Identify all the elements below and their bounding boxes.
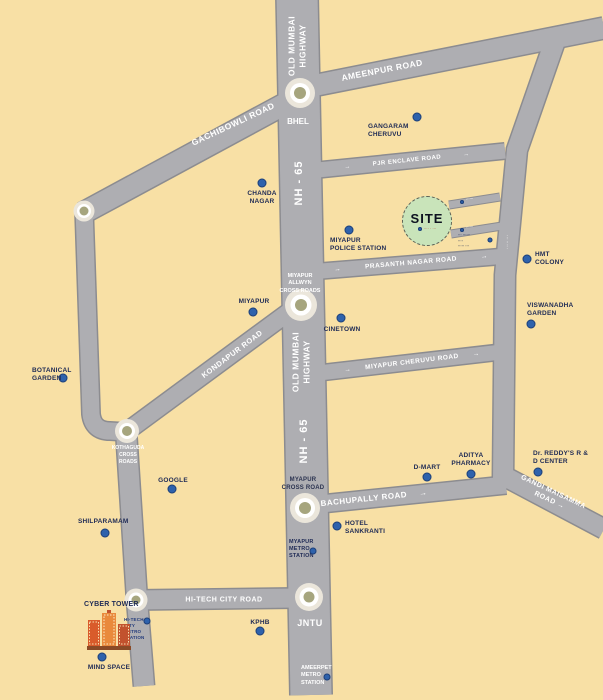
arrow-right-icon: → <box>334 266 342 274</box>
hitech-text: HI-TECH CITY ROAD <box>185 597 262 604</box>
myapur-cross-line1: MYAPUR <box>290 477 317 483</box>
road-fills <box>83 0 603 695</box>
kphb-marker <box>256 627 265 636</box>
label-shilparamam: SHILPARAMAM <box>78 518 140 526</box>
label-miyapur: MIYAPUR <box>235 298 273 306</box>
gangaram-cheruvu-marker <box>413 113 422 122</box>
kothaguda-line2: CROSS <box>119 452 137 458</box>
old-mumbai-line1: OLD MUMBAI <box>286 16 296 76</box>
d-mart-marker <box>423 473 432 482</box>
arrow-right-icon: → <box>344 164 351 171</box>
arrow-right-icon: → <box>481 253 489 261</box>
myapur-metro-marker <box>310 548 317 555</box>
label-bhel: BHEL <box>280 117 316 128</box>
google-marker <box>168 485 177 494</box>
junction-kothaguda <box>115 419 139 443</box>
label-kothaguda-cross-roads: KOTHAGUDA CROSS ROADS <box>110 445 146 465</box>
stub2-micro-marker <box>460 228 464 232</box>
label-nh65-top: NH - 65 <box>293 161 305 206</box>
chanda-nagar-marker <box>258 179 267 188</box>
cinetown-marker <box>337 314 346 323</box>
viswanadha-garden-marker <box>527 320 536 329</box>
myapur-metro-line3: STATION <box>289 553 314 559</box>
aditya-pharmacy-marker <box>467 470 476 479</box>
arrow-right-icon: → <box>418 488 427 498</box>
label-aditya-pharmacy: ADITYA PHARMACY <box>450 452 492 469</box>
hotel-sankranti-marker <box>333 522 342 531</box>
allwyn-line1: MIYAPUR ALLWYN <box>288 273 313 286</box>
kothaguda-line3: ROADS <box>119 459 137 465</box>
road-stub1 <box>449 197 500 205</box>
junction-jntu <box>295 583 323 611</box>
site-sublabel-text: ···· · ··· <box>424 227 437 231</box>
allwyn-line2: CROSS ROADS <box>280 288 321 294</box>
label-cinetown: CINETOWN <box>320 326 364 334</box>
label-dr-reddys: Dr. REDDY'S R & D CENTER <box>533 450 591 467</box>
ameerpet-metro-line1: AMEERPET <box>301 665 332 671</box>
site-sublabel: ···· · ··· <box>418 227 437 231</box>
ameerpet-metro-line2: METRO <box>301 672 321 678</box>
road-left-loop <box>84 208 127 432</box>
bhel-text: BHEL <box>287 117 309 126</box>
site-micro-marker <box>418 227 422 231</box>
arrow-right-icon: → <box>472 350 480 358</box>
location-map: OLD MUMBAI HIGHWAY NH - 65 OLD MUMBAI HI… <box>0 0 603 700</box>
label-jntu: JNTU <box>292 617 328 629</box>
cluster-line2: ···· <box>458 239 463 243</box>
micro-label-cluster: ··· ······ ···· ····· ··· <box>458 233 498 250</box>
label-cyber-tower: CYBER TOWER <box>84 600 144 609</box>
ameerpet-metro-marker <box>324 674 331 681</box>
label-google: GOOGLE <box>155 477 191 485</box>
old-mumbai-line2: HIGHWAY <box>301 340 311 383</box>
label-miyapur-police-station: MIYAPUR POLICE STATION <box>330 237 388 254</box>
old-mumbai-line1: OLD MUMBAI <box>290 332 300 392</box>
hmt-colony-marker <box>523 255 532 264</box>
label-botanical-garden: BOTANICAL GARDEN <box>32 367 76 384</box>
label-myapur-cross-road: MYAPUR CROSS ROAD <box>281 477 325 493</box>
label-hotel-sankranti: HOTEL SANKRANTI <box>345 520 391 537</box>
junction-myapur-cross <box>290 493 320 523</box>
myapur-metro-line1: MYAPUR <box>289 539 314 545</box>
junction-gachibowli-bend <box>74 201 95 222</box>
old-mumbai-line2: HIGHWAY <box>297 24 307 67</box>
myapur-cross-line2: CROSS ROAD <box>282 485 325 491</box>
hitec-metro-marker <box>144 618 151 625</box>
junction-bhel <box>285 78 315 108</box>
cluster-micro-marker <box>488 238 493 243</box>
label-miyapur-allwyn-cross-roads: MIYAPUR ALLWYN CROSS ROADS <box>277 273 323 295</box>
jntu-text: JNTU <box>297 618 323 628</box>
label-old-mumbai-highway-mid: OLD MUMBAI HIGHWAY <box>290 332 311 392</box>
stub1-micro-marker <box>460 200 464 204</box>
arrow-right-icon: → <box>556 501 566 511</box>
label-kphb: KPHB <box>246 619 274 627</box>
label-d-mart: D-MART <box>410 464 444 472</box>
cyber-tower-building-icon <box>86 610 132 650</box>
dr-reddys-marker <box>534 468 543 477</box>
mind-space-marker <box>98 653 107 662</box>
site-marker: SITE ···· · ··· <box>402 196 452 246</box>
label-gangaram-cheruvu: GANGARAM CHERUVU <box>368 123 418 140</box>
kothaguda-line1: KOTHAGUDA <box>112 445 145 451</box>
cluster-line3: ····· ··· <box>458 244 469 248</box>
site-label: SITE <box>411 212 444 225</box>
label-hitech-city-road: HI-TECH CITY ROAD <box>185 597 262 604</box>
nh65-text: NH - 65 <box>293 161 305 206</box>
miyapur-police-marker <box>345 226 354 235</box>
shilparamam-marker <box>101 529 110 538</box>
label-mind-space: MIND SPACE <box>80 664 138 672</box>
right-road-vertical-micro-label: · ·· ·· ·· · <box>505 235 509 249</box>
cluster-line1: ··· ······ <box>458 233 470 237</box>
label-viswanadha-garden: VISWANADHA GARDEN <box>527 302 579 319</box>
label-chanda-nagar: CHANDA NAGAR <box>240 190 284 207</box>
myapur-metro-line2: METRO <box>289 546 310 552</box>
label-hmt-colony: HMT COLONY <box>535 251 565 268</box>
arrow-right-icon: → <box>463 151 470 158</box>
ameerpet-metro-line3: STATION <box>301 680 324 686</box>
label-old-mumbai-highway-top: OLD MUMBAI HIGHWAY <box>286 16 307 76</box>
arrow-right-icon: → <box>344 366 352 374</box>
miyapur-marker <box>249 308 258 317</box>
label-nh65-mid: NH - 65 <box>298 419 310 464</box>
nh65-text: NH - 65 <box>298 419 310 464</box>
